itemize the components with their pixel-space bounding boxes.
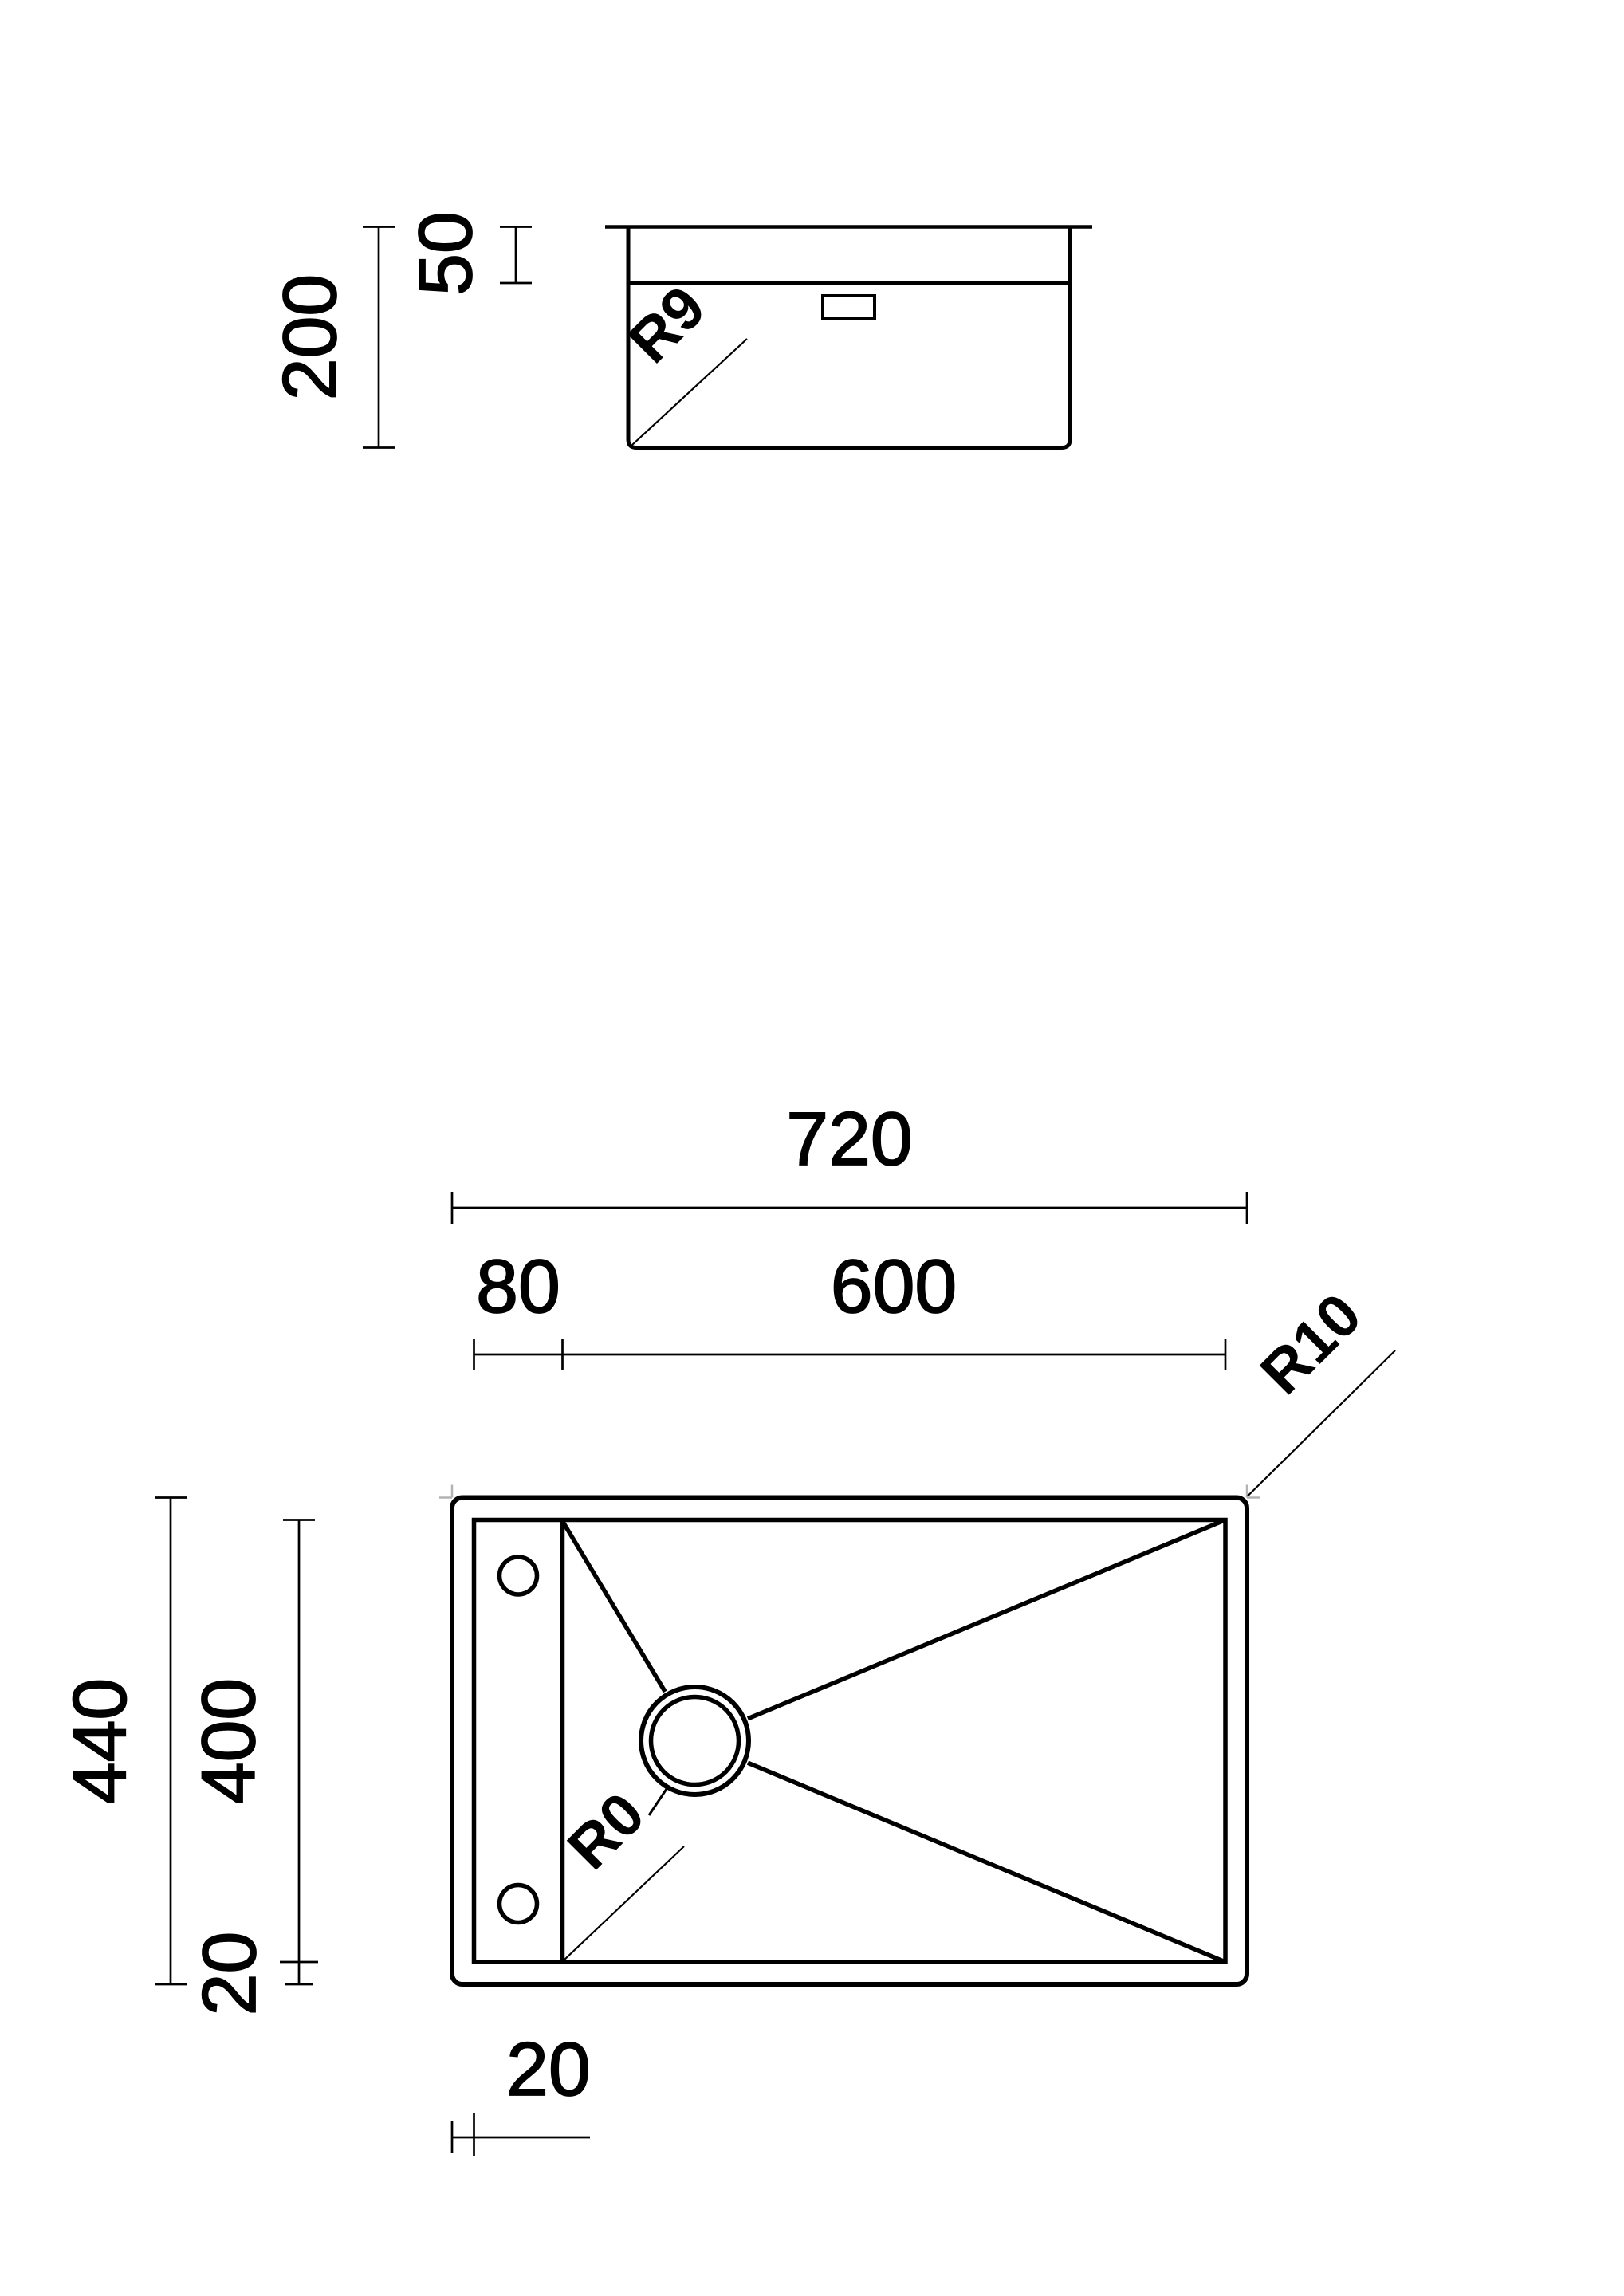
- svg-text:720: 720: [786, 1097, 913, 1181]
- svg-text:200: 200: [268, 274, 352, 401]
- svg-text:400: 400: [187, 1678, 271, 1805]
- svg-text:20: 20: [187, 1932, 272, 2016]
- svg-text:600: 600: [831, 1244, 957, 1329]
- svg-text:20: 20: [506, 2027, 591, 2112]
- svg-text:50: 50: [403, 211, 488, 296]
- svg-text:80: 80: [476, 1244, 560, 1329]
- svg-text:440: 440: [58, 1678, 143, 1805]
